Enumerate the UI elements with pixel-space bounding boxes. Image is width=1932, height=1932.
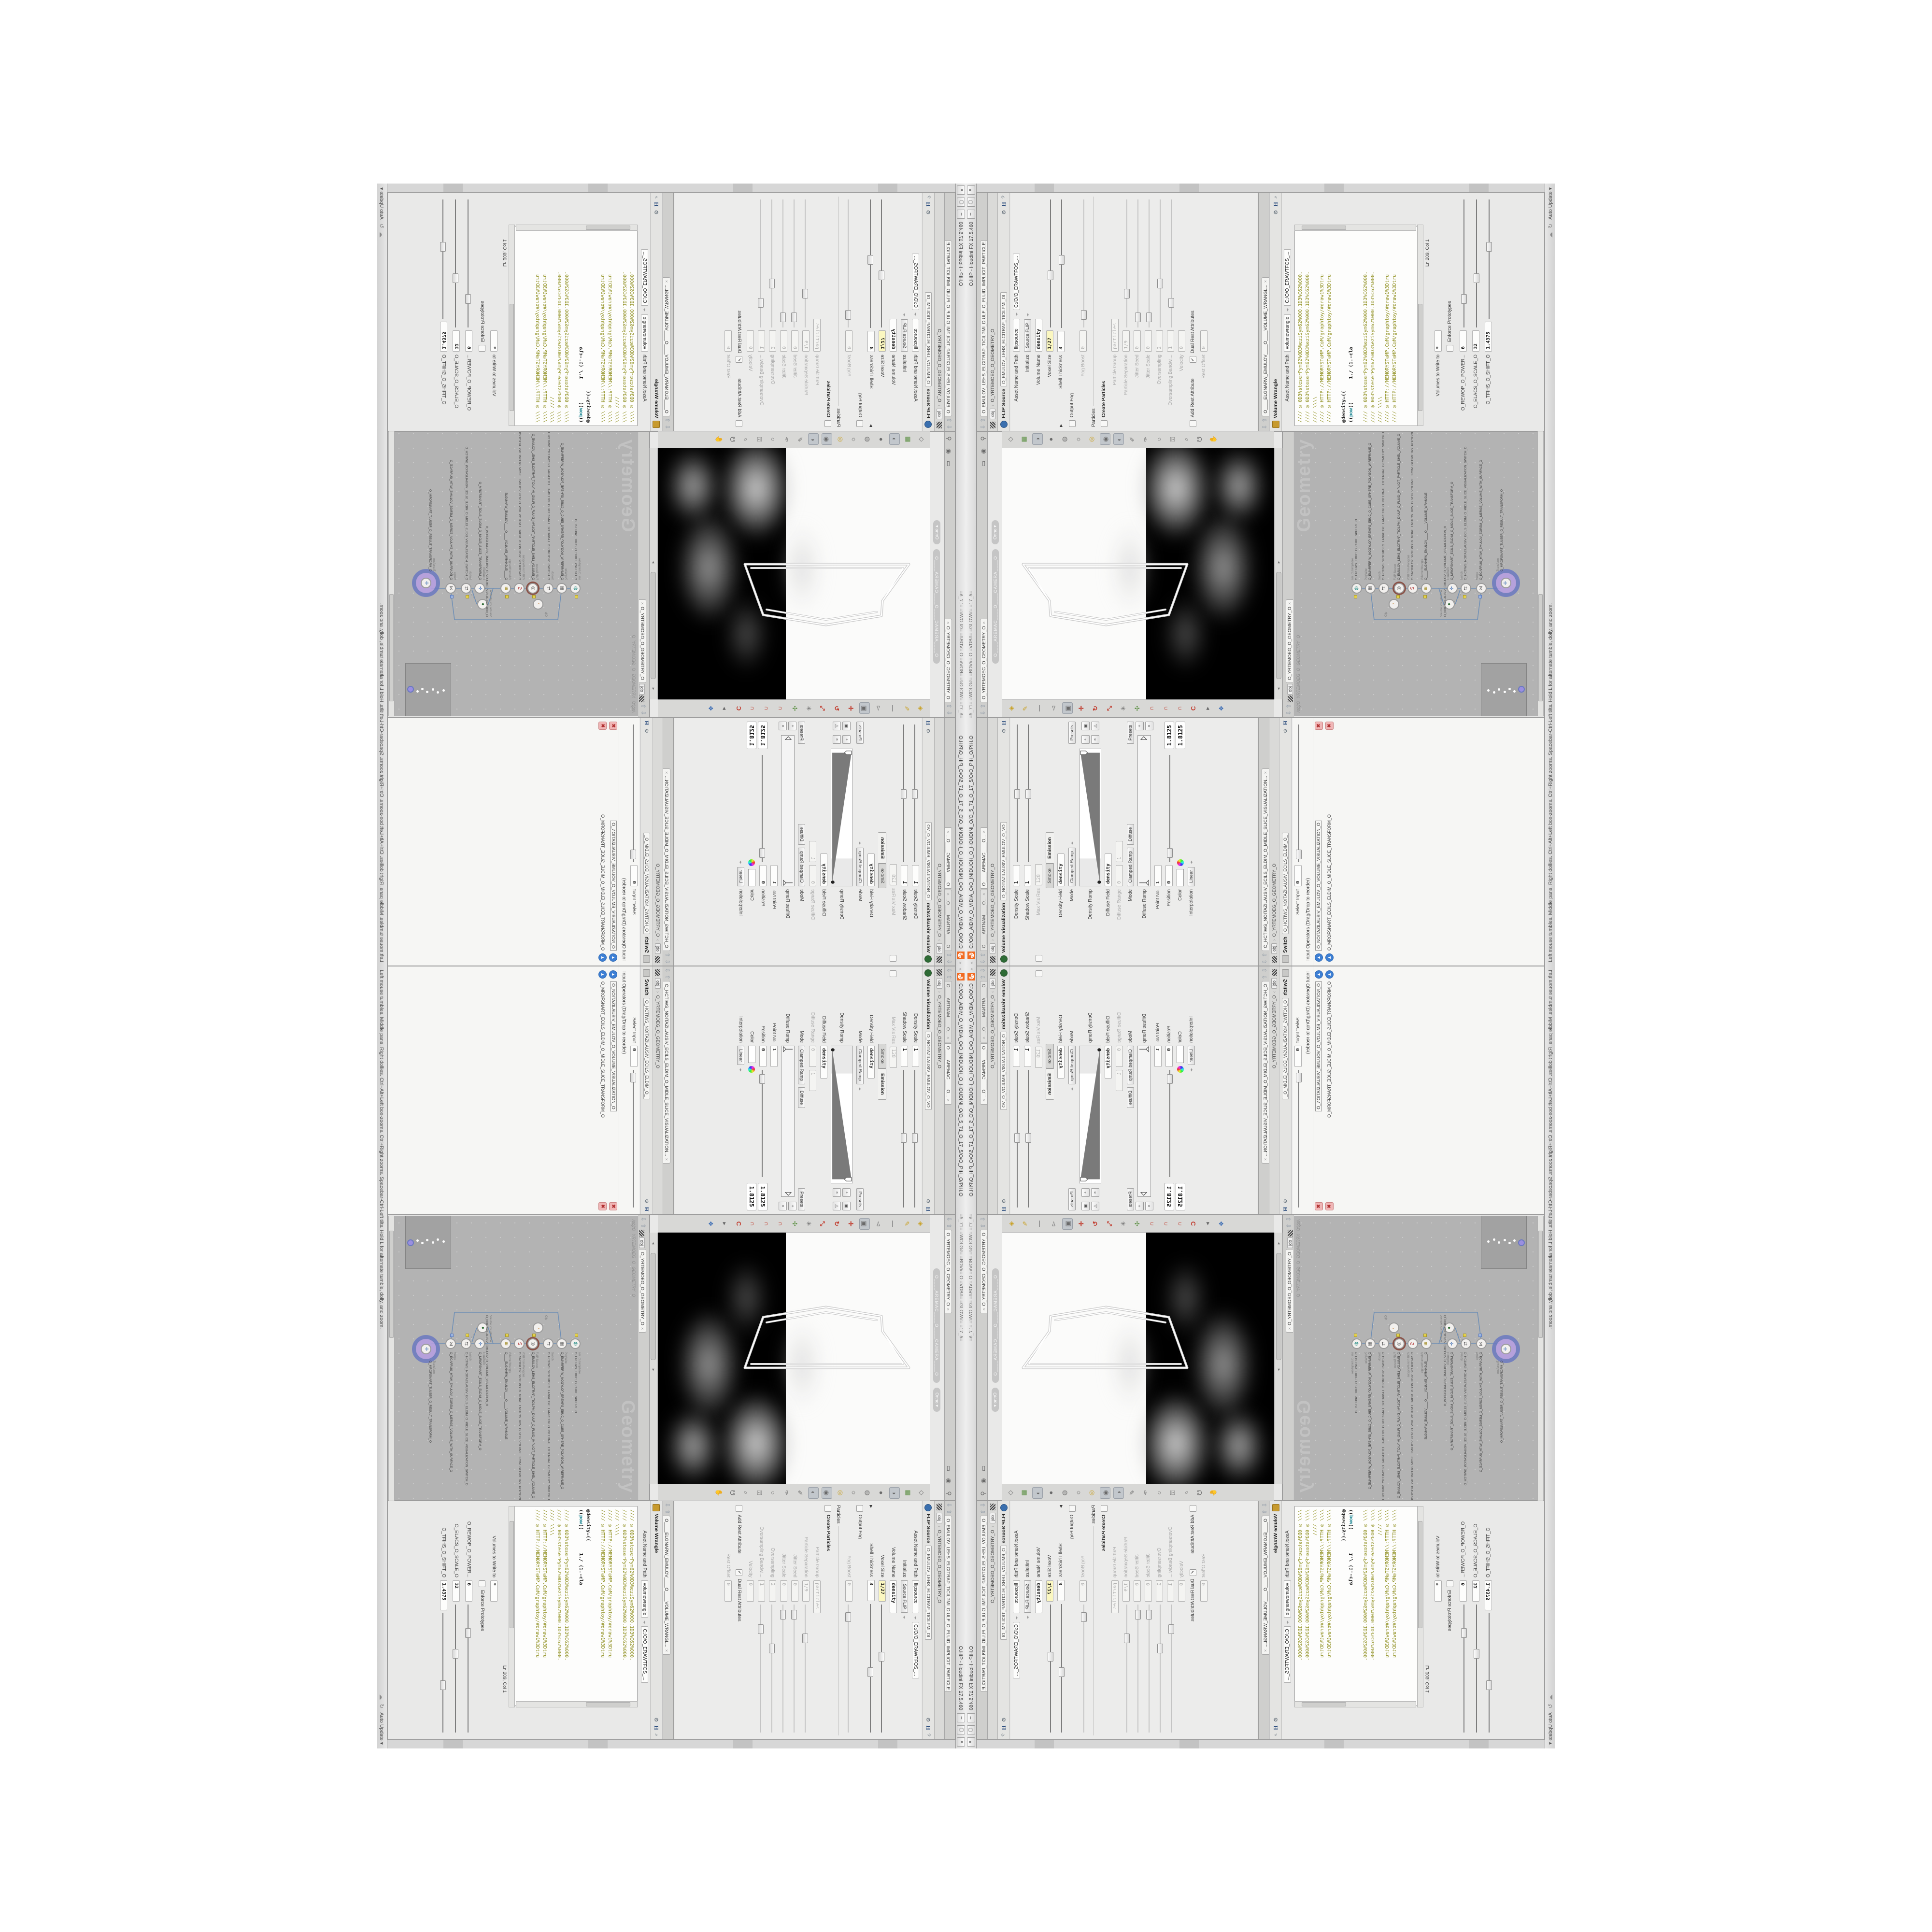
tab-mantra[interactable]: O____ARTNAM____O...× [945, 981, 952, 1042]
asset-path-field[interactable]: C:/O/O_ERAWTFOS_... [641, 1626, 648, 1683]
obj-chip[interactable]: obj [990, 978, 995, 989]
gear-icon[interactable]: ⚙ [653, 1718, 660, 1722]
tab-close-icon[interactable]: × [981, 1037, 987, 1039]
node-result-transform-selected[interactable]: ✛ [421, 578, 431, 588]
tab-close-icon[interactable]: × [639, 1327, 645, 1330]
vex-code-editor[interactable]: //// ◎ 0D3%steserPym62%0D3%eziSym62%000.… [512, 226, 638, 426]
point-no-field[interactable]: 1 [770, 865, 778, 886]
tab-close-icon[interactable]: × [1263, 1649, 1268, 1652]
scale-slider[interactable] [1473, 197, 1479, 327]
character-icon[interactable]: ✋ [1208, 434, 1219, 445]
presets-dropdown[interactable]: Presets [798, 722, 805, 744]
volume-display-icon[interactable]: ◉ [822, 1487, 832, 1499]
tab-close-icon[interactable]: × [945, 893, 951, 895]
hand-pen-icon[interactable]: ✑ [1140, 1487, 1151, 1499]
smooth-shade-icon[interactable]: ◐ [808, 434, 819, 445]
color-swatch[interactable] [1177, 869, 1184, 886]
houdini-help-icon[interactable]: H [925, 202, 932, 206]
node-flag[interactable] [532, 595, 536, 598]
pane-back-icon[interactable]: ⇩ [1284, 710, 1293, 716]
scroll-right-icon[interactable]: ▸ [1276, 1364, 1282, 1376]
obj-chip[interactable]: obj [639, 684, 645, 695]
window-titlebar[interactable]: ‹‹ C:/O/O_AIDIV_O_VIDIA_O/O_INIDUOH_O_HO… [966, 966, 977, 1748]
asset-path-field[interactable]: C:/O/O_ERAWTFOS_... [1284, 1626, 1291, 1683]
gear-icon[interactable]: ⚙ [1001, 1199, 1007, 1204]
add-rest-checkbox[interactable] [1190, 420, 1196, 427]
create-particles-checkbox[interactable] [825, 420, 832, 427]
tab-switch-node[interactable]: O_HCTIWS_NOITAZILAUSIV_ECILS_ELDIM_O_MID… [1262, 981, 1269, 1164]
oversampling-bandwidth-slider[interactable] [1168, 1605, 1174, 1735]
houdini-help-icon[interactable]: H [925, 721, 932, 725]
select-input-slider[interactable] [1295, 1070, 1301, 1210]
node-name-tab[interactable]: O_EMULOV_LEHS_ELCITRAP_TICILPMI_DI [925, 292, 932, 386]
pane-fwd-icon[interactable]: ⇧ [979, 952, 987, 958]
scroll-right-icon[interactable]: ▸ [651, 556, 657, 568]
snap-curve-magnet-icon[interactable]: ∩ [1160, 703, 1171, 714]
network-hscroll[interactable] [388, 431, 395, 716]
diffuse-mode-dropdown[interactable]: Clamped Ramp [798, 848, 805, 886]
pane-back-icon[interactable]: ⇩ [945, 1502, 953, 1508]
node-name-tab[interactable]: O_NOITAZILAUSIV_EMULOV_O_VO [925, 822, 932, 900]
pane-back-icon[interactable]: ⇩ [979, 959, 987, 965]
pane-back-icon[interactable]: ⇩ [979, 710, 987, 716]
points-display-icon[interactable]: ● [876, 1487, 886, 1499]
pane-fwd-icon[interactable]: ⇧ [663, 1509, 672, 1515]
viewport-render[interactable] [658, 1233, 930, 1484]
add-rest-checkbox[interactable] [736, 1505, 743, 1512]
density-scale-slider[interactable] [1014, 722, 1020, 862]
tab-wrangle-node[interactable]: O____ELGNARW_EMULOV____O____VOLUME_WRANG… [1262, 1516, 1269, 1655]
code-vscroll[interactable] [1294, 1701, 1416, 1707]
color-wheel-icon[interactable] [1177, 1066, 1184, 1073]
spinner-icon[interactable]: ◂▸ [902, 1616, 907, 1619]
density-field[interactable]: density [867, 853, 875, 886]
interpolation-dropdown[interactable]: Linear [1188, 867, 1195, 886]
delete-operator-icon[interactable]: ✖ [1325, 1202, 1334, 1210]
delete-operator-icon[interactable]: ✖ [610, 1202, 618, 1210]
node-flag[interactable] [1463, 595, 1466, 598]
viewport-render[interactable] [658, 448, 930, 699]
ramp-marker-icon[interactable]: △ [833, 1202, 841, 1210]
pane-fwd-icon[interactable]: ⇧ [979, 974, 987, 980]
tab-camera[interactable]: O____AREMAC____O...× [945, 827, 952, 889]
voxel-size-field[interactable]: 1/27 [1046, 330, 1053, 352]
auto-update-dropdown[interactable]: Auto Update ▾ [379, 1712, 385, 1745]
shadow-scale-slider[interactable] [902, 722, 908, 862]
enforce-prototypes-checkbox[interactable] [1447, 1580, 1453, 1587]
move-up-icon[interactable]: ▲ [1325, 970, 1334, 979]
spinner-icon[interactable]: ◂▸ [739, 1068, 743, 1071]
character-icon[interactable]: ✋ [713, 434, 724, 445]
spinner-icon[interactable]: ◂▸ [913, 313, 918, 316]
layout-single-icon[interactable]: ▭ [945, 458, 952, 469]
expand-icon[interactable]: ▸ [719, 1218, 730, 1230]
ramp-add-icon[interactable]: + [789, 1202, 797, 1210]
vex-code-editor[interactable]: //// ◎ 0D3%steserPym62%0D3%eziSym62%000.… [512, 1506, 638, 1706]
color-swatch[interactable] [748, 869, 755, 886]
pane-fwd-icon[interactable]: ⇧ [945, 703, 953, 709]
jitter-seed-slider[interactable] [1135, 1605, 1140, 1735]
rotate-tool-icon[interactable]: ↻ [1090, 703, 1101, 714]
layout-single-icon[interactable]: ▭ [980, 1463, 987, 1474]
snap-curve-magnet-icon[interactable]: ∩ [761, 1218, 772, 1230]
switch-path-bar[interactable]: obj › O_YRTEMOEG_O_GEOMETRY_O [1269, 966, 1279, 1214]
asset-name-field[interactable]: volumewrangle [1284, 314, 1291, 352]
spinner-icon[interactable]: ◂▸ [858, 1087, 862, 1090]
node-name-tab[interactable]: O_EMULOV_LEHS_ELCITRAP_TICILPMI_DI [1000, 292, 1007, 386]
houdini-help-icon[interactable]: H [643, 721, 651, 725]
scale-tool-icon[interactable]: ⤡ [1104, 703, 1115, 714]
rotate-tool-icon[interactable]: ↻ [1090, 1218, 1101, 1230]
handles-tool-icon[interactable]: ◈ [1006, 1218, 1017, 1230]
volume-name-field[interactable]: density [890, 319, 897, 352]
refresh-icon[interactable]: ↻ [379, 224, 385, 228]
points-display-icon[interactable]: ● [1046, 1487, 1056, 1499]
points-display-icon[interactable]: ● [876, 434, 886, 445]
display-flag[interactable] [1478, 595, 1482, 598]
tab-emission[interactable]: Emission [1046, 832, 1054, 863]
pane-back-icon[interactable]: ⇩ [1260, 959, 1269, 965]
network-minimap[interactable] [405, 1216, 451, 1269]
oversampling-bandwidth-field[interactable]: 1 [758, 1580, 765, 1602]
diffuse-range-min[interactable]: 0 [1116, 865, 1123, 886]
tab-scene-view[interactable]: O_YRTEMOEG_O_GEOMETRY_O× [980, 619, 987, 702]
node-cube-sphere[interactable]: ◍ [570, 1338, 581, 1349]
close-button[interactable]: × [967, 1737, 975, 1747]
node-name-tab[interactable]: O_HCTIWS_NOITAZILAUSIV_ECILS_ELDIM_O_ [643, 998, 650, 1099]
display-flag[interactable] [1478, 1334, 1482, 1337]
shift-field[interactable]: 1.4375 [440, 1580, 447, 1610]
input-operator-row[interactable]: ▲ O_MROFSNART_ECILS_ELDIM_O_MIDLE_SLICE_… [597, 718, 608, 966]
position-field[interactable]: 0 [759, 1046, 767, 1067]
ortho-menu-pill[interactable]: Ortho ▾ [933, 520, 940, 544]
houdini-help-icon[interactable]: H [1282, 721, 1289, 725]
camera-lock-icon[interactable]: ◉ [980, 445, 987, 457]
obj-chip[interactable]: obj [937, 409, 942, 419]
pose-tool-icon[interactable]: ✳ [803, 703, 814, 714]
pose-tool-icon[interactable]: ✳ [803, 1218, 814, 1230]
value-1-8125[interactable]: 1.8125 [758, 722, 768, 749]
jitter-seed-slider[interactable] [792, 1605, 798, 1735]
value-1-8125[interactable]: 1.8125 [1165, 722, 1174, 749]
houdini-help-icon[interactable]: H [1282, 1207, 1289, 1211]
move-up-icon[interactable]: ▲ [610, 970, 618, 979]
rest-offset-field[interactable]: 0 [724, 1580, 732, 1602]
select-input-field[interactable]: 0 [630, 865, 638, 886]
oversampling-field[interactable]: 2 [1156, 1580, 1163, 1602]
move-up-icon[interactable]: ▲ [1315, 953, 1323, 962]
ramp-flip-icon[interactable]: ▣ [843, 1202, 851, 1210]
density-scale-slider[interactable] [913, 1070, 919, 1210]
key-icon[interactable]: ⚿ [1167, 1487, 1178, 1499]
pane-back-icon[interactable]: ⇩ [639, 1216, 648, 1222]
node-vdb-from-polygons[interactable]: S [514, 583, 525, 594]
shaded-mode-icon[interactable]: ◑ [1032, 1487, 1043, 1499]
snap-grid-magnet-icon[interactable]: ∩ [1146, 1218, 1157, 1230]
pane-back-icon[interactable]: ⇩ [1260, 424, 1269, 430]
node-name-tab[interactable]: O_NOITAZILAUSIV_EMULOV_O_VO [1000, 1032, 1007, 1110]
asset-path-field[interactable]: C:/O/O_ERAWTFOS_... [912, 1622, 919, 1678]
ortho-menu-pill[interactable]: Ortho ▾ [933, 1388, 940, 1412]
value-1-8125[interactable]: 1.8125 [1176, 1183, 1185, 1210]
asset-name-field[interactable]: volumewrangle [641, 1580, 648, 1618]
jitter-scale-field[interactable]: 0 [780, 330, 787, 352]
diffuse-field[interactable]: density [1105, 853, 1112, 886]
tab-network-geometry[interactable]: O_YRTEMOEG_O_GEOMETRY_O× [639, 599, 646, 683]
pane-back-icon[interactable]: ⇩ [639, 710, 648, 716]
asset-name-field[interactable]: flipsource [1013, 319, 1020, 352]
enforce-prototypes-checkbox[interactable] [1447, 345, 1453, 352]
delete-operator-icon[interactable]: ✖ [599, 1202, 607, 1210]
node-geometry-switch[interactable]: ⇆ [1378, 583, 1389, 594]
auto-update-dropdown[interactable]: Auto Update ▾ [379, 187, 385, 220]
houdini-help-icon[interactable]: H [643, 1207, 651, 1211]
gear-icon[interactable]: ⚙ [925, 1718, 932, 1722]
oversampling-field[interactable]: 2 [769, 330, 776, 352]
create-particles-checkbox[interactable] [1101, 420, 1108, 427]
obj-chip[interactable]: obj [937, 943, 942, 954]
pane-fwd-icon[interactable]: ⇧ [979, 703, 987, 709]
houdini-help-icon[interactable]: H [1000, 1726, 1008, 1730]
tab-close-icon[interactable]: × [1287, 1327, 1293, 1330]
camera-menu-pill[interactable]: O____AREMAC____O____CAMERA____O [934, 549, 940, 664]
maximize-button[interactable]: ▢ [957, 198, 965, 207]
tab-close-icon[interactable]: × [664, 280, 669, 283]
diffuse-range-max[interactable]: 1 [1116, 841, 1123, 862]
tab-wrangle-node[interactable]: O____ELGNARW_EMULOV____O____VOLUME_WRANG… [663, 1516, 670, 1655]
code-hscroll[interactable] [1417, 1506, 1423, 1707]
density-scale-slider[interactable] [1014, 1070, 1020, 1210]
delete-operator-icon[interactable]: ✖ [1325, 722, 1334, 730]
diffuse-field[interactable]: density [820, 1046, 827, 1079]
minimize-button[interactable]: – [967, 210, 975, 219]
node-polywire[interactable]: ▦ [1365, 1338, 1376, 1349]
tab-switch-node[interactable]: O_HCTIWS_NOITAZILAUSIV_ECILS_ELDIM_O_MID… [1262, 768, 1269, 951]
output-fog-checkbox[interactable] [1069, 420, 1076, 427]
oversampling-bandwidth-slider[interactable] [1168, 197, 1174, 327]
operator-name[interactable]: O_MROFSNART_ECILS_ELDIM_O_MIDLE_SLICE_TR… [1327, 981, 1332, 1118]
node-clip[interactable]: ◔ [533, 1322, 543, 1333]
value-1-8125[interactable]: 1.8125 [747, 722, 757, 749]
node-name-tab[interactable]: O_HCTIWS_NOITAZILAUSIV_ECILS_ELDIM_O_ [1282, 998, 1289, 1099]
node-cube-sphere[interactable]: ◍ [1351, 583, 1362, 594]
density-ramp-widget[interactable] [831, 749, 853, 886]
voxel-size-slider[interactable] [880, 1605, 885, 1735]
handles-tool-icon[interactable]: ◈ [1006, 703, 1017, 714]
operator-name[interactable]: O_MROFSNART_ECILS_ELDIM_O_MIDLE_SLICE_TR… [600, 814, 605, 951]
jitter-scale-field[interactable]: 0 [1145, 1580, 1152, 1602]
operator-name[interactable]: O_NOITAZILAUSIV_EMULOV_O_VOLUME_VISUALIZ… [1315, 821, 1322, 951]
volumes-to-write-field[interactable]: * [490, 330, 497, 352]
houdini-help-icon[interactable]: H [925, 1726, 932, 1730]
value-1-8125[interactable]: 1.8125 [747, 1183, 757, 1210]
view-tool-icon[interactable]: ▣ [859, 1218, 870, 1230]
obj-chip[interactable]: obj [937, 978, 942, 989]
tab-mantra[interactable]: O____ARTNAM____O...× [980, 981, 987, 1042]
channel-flag-icon[interactable]: ▶ [869, 424, 873, 427]
code-vscroll[interactable] [1294, 225, 1416, 231]
camera-menu-pill[interactable]: O____AREMAC____O____CAMERA____O [934, 1268, 940, 1383]
node-flag[interactable] [532, 1334, 536, 1337]
magnify-icon[interactable]: ⌕ [1181, 1487, 1192, 1499]
power-field[interactable]: 6 [465, 330, 472, 352]
point-no-field[interactable]: 1 [1154, 1046, 1162, 1067]
gear-icon[interactable]: ⚙ [1273, 210, 1279, 215]
wire-sphere-icon[interactable]: ◍ [1059, 1487, 1070, 1499]
scroll-left-icon[interactable]: ◂ [1276, 683, 1282, 695]
diffuse-ramp-widget[interactable] [1137, 1046, 1151, 1197]
value-1-8125[interactable]: 1.8125 [1176, 722, 1185, 749]
pin-icon[interactable]: ⚲ [980, 1488, 987, 1499]
shift-slider[interactable] [441, 197, 447, 319]
shell-thickness-field[interactable]: 3 [867, 1580, 875, 1601]
move-up-icon[interactable]: ▲ [1315, 970, 1323, 979]
initialize-dropdown[interactable]: Source FLIP [1024, 1580, 1031, 1613]
pane-fwd-icon[interactable]: ⇧ [639, 1223, 648, 1229]
tab-camera[interactable]: O____AREMAC____O...× [980, 827, 987, 889]
jitter-scale-slider[interactable] [1146, 1605, 1151, 1735]
value-1-8125[interactable]: 1.8125 [758, 1183, 768, 1210]
pane-fwd-icon[interactable]: ⇧ [1260, 1509, 1269, 1515]
tab-close-icon[interactable]: × [945, 1308, 951, 1311]
diamond-display-icon[interactable]: ◇ [1005, 434, 1016, 445]
network-minimap[interactable] [405, 663, 451, 716]
oversampling-slider[interactable] [1157, 197, 1163, 327]
node-slice-transform[interactable]: ✛ [474, 1338, 485, 1349]
pane-back-icon[interactable]: ⇩ [1284, 1216, 1293, 1222]
draw-pen-icon[interactable]: ✐ [795, 1487, 805, 1499]
rest-offset-field[interactable]: 0 [1200, 1580, 1207, 1602]
node-flag[interactable] [466, 595, 469, 598]
diffuse-range-max[interactable]: 1 [1116, 1070, 1123, 1091]
particle-separation-field[interactable]: 1/9 [802, 1580, 810, 1602]
power-slider[interactable] [1461, 197, 1466, 327]
scroll-thumb[interactable] [651, 1253, 656, 1360]
maxvis-field[interactable]: 128 [1035, 1047, 1042, 1068]
normals-icon[interactable]: ◎ [835, 434, 846, 445]
velocity-field[interactable]: 0 [1178, 1580, 1185, 1602]
node-flag[interactable] [575, 595, 578, 598]
right-edge-scroll-strip[interactable] [387, 184, 955, 192]
enforce-prototypes-checkbox[interactable] [479, 345, 486, 352]
diffuse-field[interactable]: density [820, 853, 827, 886]
pane-fwd-icon[interactable]: ⇧ [945, 417, 953, 423]
smooth-shade-icon[interactable]: ◐ [1113, 434, 1124, 445]
ramp-delete-icon[interactable]: × [1145, 1202, 1153, 1210]
oversampling-bandwidth-field[interactable]: 1 [1167, 330, 1174, 352]
spinner-icon[interactable]: ◂▸ [1285, 1620, 1290, 1623]
color-swatch[interactable] [1177, 1046, 1184, 1063]
normals-icon[interactable]: ◎ [835, 1487, 846, 1499]
operator-name[interactable]: O_NOITAZILAUSIV_EMULOV_O_VOLUME_VISUALIZ… [610, 981, 617, 1111]
obj-chip[interactable]: obj [655, 943, 661, 954]
maxvis-checkbox[interactable] [1036, 970, 1042, 977]
jitter-scale-field[interactable]: 0 [1145, 330, 1152, 352]
tab-close-icon[interactable]: × [945, 830, 951, 833]
delete-operator-icon[interactable]: ✖ [599, 722, 607, 730]
spinner-icon[interactable]: ◂▸ [1070, 842, 1074, 845]
diffuse-range-min[interactable]: 0 [1116, 1046, 1123, 1067]
pane-back-icon[interactable]: ⇩ [945, 959, 953, 965]
spinner-icon[interactable]: ◂▸ [858, 842, 862, 845]
snap-grid-magnet-icon[interactable]: ∩ [1146, 703, 1157, 714]
scroll-right-icon[interactable]: ▸ [1276, 556, 1282, 568]
particle-separation-slider[interactable] [1123, 1605, 1129, 1735]
initialize-dropdown[interactable]: Source FLIP [1024, 319, 1031, 352]
jitter-scale-field[interactable]: 0 [780, 1580, 787, 1602]
tab-close-icon[interactable]: × [945, 1037, 951, 1039]
pose-tool-icon[interactable]: ✳ [1118, 703, 1129, 714]
oversampling-bandwidth-field[interactable]: 1 [1167, 1580, 1174, 1602]
camera-lock-icon[interactable]: ◉ [945, 445, 952, 457]
shadow-scale-field[interactable]: 1 [901, 865, 908, 886]
voxel-size-slider[interactable] [1047, 197, 1053, 327]
shadow-scale-field[interactable]: 1 [1024, 1046, 1031, 1067]
node-name-tab[interactable]: O_EMULOV_LEHS_ELCITRAP_TICILPMI_DI [1000, 1546, 1007, 1640]
input-operator-row[interactable]: ▲ O_MROFSNART_ECILS_ELDIM_O_MIDLE_SLICE_… [1324, 718, 1335, 966]
skeleton-icon[interactable]: ☋ [1194, 434, 1205, 445]
window-titlebar[interactable]: ‹‹ C:/O/O_AIDIV_O_VIDIA_O/O_INIDUOH_O_HO… [955, 966, 966, 1748]
particle-separation-field[interactable]: 1/9 [802, 330, 810, 352]
maxvis-checkbox[interactable] [890, 955, 897, 962]
node-flip-source[interactable]: ◎ [527, 1338, 538, 1349]
scale-tool-icon[interactable]: ⤡ [817, 1218, 828, 1230]
select-tool-icon[interactable]: ◅ [873, 703, 884, 714]
node-clip[interactable]: ◔ [1389, 1322, 1399, 1333]
density-field[interactable]: density [867, 1046, 875, 1079]
expand-icon[interactable]: ▸ [1202, 703, 1213, 714]
ramp-delete-icon[interactable]: × [833, 735, 841, 744]
gear-icon[interactable]: ⚙ [644, 728, 650, 733]
density-ramp-widget[interactable] [1079, 749, 1101, 886]
code-hscroll[interactable] [509, 225, 515, 426]
select-input-field[interactable]: 0 [1294, 865, 1302, 886]
tab-smoke[interactable]: Smoke [1046, 1044, 1054, 1068]
shaded-mode-icon[interactable]: ◑ [1032, 434, 1043, 445]
particle-separation-slider[interactable] [803, 197, 809, 327]
volviz-path-bar[interactable]: obj › O_YRTEMOEG_O_GEOMETRY_O [934, 966, 944, 1214]
node-visualization-switch[interactable]: ⇆ [461, 583, 471, 594]
tab-network-geometry[interactable]: O_YRTEMOEG_O_GEOMETRY_O× [1286, 1249, 1293, 1333]
shell-thickness-field[interactable]: 3 [867, 331, 875, 352]
switch-path-bar[interactable]: obj › O_YRTEMOEG_O_GEOMETRY_O [1269, 718, 1279, 966]
node-flag[interactable] [466, 1334, 469, 1337]
tab-scene-view[interactable]: O_YRTEMOEG_O_GEOMETRY_O× [945, 1230, 952, 1313]
viewport-render[interactable] [1002, 1233, 1274, 1484]
input-operator-row[interactable]: ▲ O_NOITAZILAUSIV_EMULOV_O_VOLUME_VISUAL… [608, 966, 619, 1214]
position-field[interactable]: 0 [759, 865, 767, 886]
tab-scene-view[interactable]: O_YRTEMOEG_O_GEOMETRY_O× [980, 1230, 987, 1313]
density-scale-field[interactable]: 1 [912, 865, 919, 886]
diffuse-ramp-widget[interactable] [781, 1046, 795, 1197]
node-visualization-switch[interactable]: ⇆ [1461, 1338, 1471, 1349]
jitter-seed-slider[interactable] [792, 197, 798, 327]
dual-rest-checkbox[interactable] [1190, 356, 1196, 363]
node-merge[interactable]: ⋈ [1476, 1338, 1487, 1349]
tab-wrangle-node[interactable]: O____ELGNARW_EMULOV____O____VOLUME_WRANG… [1262, 277, 1269, 416]
maxvis-checkbox[interactable] [890, 970, 897, 977]
houdini-help-icon[interactable]: H [1000, 202, 1008, 206]
jitter-seed-field[interactable]: 0 [791, 330, 798, 352]
pane-back-icon[interactable]: ⇩ [945, 967, 953, 973]
dot-icon[interactable]: ○ [1154, 1487, 1165, 1499]
tab-mantra[interactable]: O____ARTNAM____O...× [945, 890, 952, 951]
voxel-size-field[interactable]: 1/27 [879, 330, 886, 352]
operator-name[interactable]: O_MROFSNART_ECILS_ELDIM_O_MIDLE_SLICE_TR… [600, 981, 605, 1118]
oversampling-slider[interactable] [1157, 1605, 1163, 1735]
interpolation-dropdown[interactable]: Linear [737, 867, 744, 886]
mode-dropdown[interactable]: Clamped Ramp [856, 848, 864, 886]
